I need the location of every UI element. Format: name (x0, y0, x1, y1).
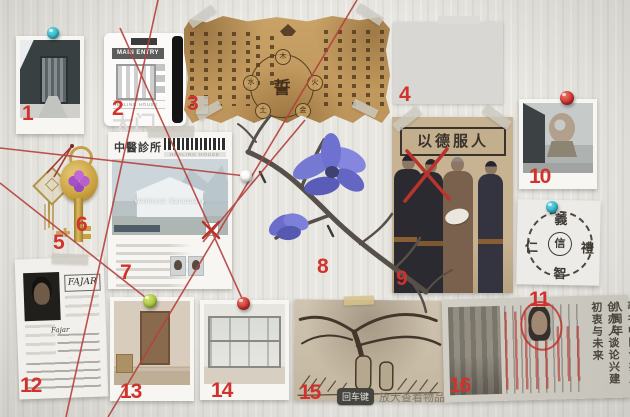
person-belt (478, 239, 503, 244)
hallway-photo-image (114, 301, 190, 385)
label-number-6: 6 (76, 214, 87, 235)
tape-sketch-top (344, 295, 374, 305)
file-portrait (23, 272, 61, 321)
file-header-lines (65, 295, 100, 320)
label-number-16: 16 (449, 375, 470, 396)
evidence-family-poster[interactable]: 以德服人 (392, 117, 513, 293)
sculpture-base (547, 141, 577, 157)
pushpin-white-branch (240, 170, 252, 182)
file-entry-lines (57, 333, 100, 358)
card-top-label (131, 38, 157, 45)
person-head (485, 161, 497, 175)
tape-flyer-top (148, 126, 194, 137)
seal-char-bottom: 智 (553, 263, 566, 282)
seal-char-center: 信 (548, 232, 572, 256)
oath-diagram: 誓 木 水 火 土 金 (250, 54, 314, 118)
label-number-13: 13 (120, 381, 141, 402)
card-side-icons (156, 64, 165, 96)
calligraphy-columns-right (324, 30, 384, 108)
label-number-2: 2 (112, 98, 123, 119)
element-wood: 木 (275, 49, 291, 65)
evidence-seal-paper[interactable]: 義 仁 禮 智 信 (516, 199, 600, 285)
label-number-9: 9 (396, 268, 407, 289)
photo-caption-band (114, 225, 160, 232)
seal-char-top: 義 (554, 209, 567, 228)
label-number-14: 14 (211, 380, 232, 401)
keyboard-hint: 回车键 放大查看物品 (337, 388, 445, 405)
pushpin-cyan-seal (546, 201, 558, 213)
flyer-subtitle: HEALING HOUSE (164, 152, 226, 157)
person-belt (417, 241, 443, 246)
hint-text: 放大查看物品 (379, 389, 445, 405)
label-number-5: 5 (53, 232, 64, 253)
flyer-id-photo-1 (170, 256, 186, 276)
seal-char-right: 禮 (581, 237, 594, 256)
photo-box (116, 354, 133, 373)
flyer-title: 中醫診所 (114, 139, 162, 155)
room-photo-image (204, 304, 285, 384)
label-number-1: 1 (22, 103, 33, 124)
pushpin-red-sculpture (560, 91, 574, 105)
element-fire: 火 (307, 75, 323, 91)
person-head (425, 159, 437, 173)
flyer-id-photo-2 (188, 256, 204, 276)
person-head (402, 155, 415, 170)
label-number-4: 4 (399, 84, 410, 105)
person-head (451, 157, 464, 172)
label-number-10: 10 (529, 166, 550, 187)
label-number-11: 11 (529, 289, 549, 310)
newspaper-headline-2: 创办人谈论兴建初衷与未来 (588, 301, 622, 394)
photo-door (140, 311, 170, 365)
person-body (443, 171, 473, 293)
label-number-12: 12 (20, 375, 41, 396)
file-name-header: FAJAR (64, 274, 101, 292)
person-body (478, 174, 503, 293)
element-water: 水 (243, 75, 259, 91)
pushpin-cyan-entrance (47, 27, 59, 39)
flyer-checkbox (205, 222, 219, 236)
label-number-15: 15 (299, 382, 320, 403)
qr-code (116, 64, 156, 100)
key-flower-inlay (68, 168, 90, 192)
element-earth: 土 (255, 103, 271, 119)
tape-file-top (52, 253, 88, 264)
enter-key-badge: 回车键 (337, 388, 374, 405)
card-title: MAIN ENTRY (112, 48, 164, 59)
pushpin-green-hallway (143, 294, 157, 308)
label-number-8: 8 (317, 256, 328, 277)
sculpture-photo-image (523, 103, 593, 173)
seal-char-left: 仁 (525, 236, 538, 255)
pendant-tassel (48, 202, 50, 228)
photo-glass-partition (208, 316, 281, 368)
ring-sculpture (549, 113, 575, 143)
evidence-board: MAIN ENTRY HEALING HOUSE 大门 誓 木 水 火 土 金 (0, 0, 630, 417)
card-magnetic-stripe (172, 36, 183, 123)
calligraphy-columns-left (190, 32, 250, 106)
oath-center-character: 誓 (274, 74, 291, 99)
flyer-barcode (164, 138, 226, 150)
scroll-seal-mark (280, 24, 296, 36)
seal-emblem: 義 仁 禮 智 信 (526, 210, 593, 277)
label-number-3: 3 (187, 93, 198, 114)
note-fold-tab (438, 16, 480, 24)
label-number-7: 7 (120, 262, 131, 283)
flyer-photo-caption: Wellness Sanctuary (112, 199, 228, 205)
poster-banner: 以德服人 (400, 127, 506, 156)
person-body (417, 172, 443, 293)
pushpin-red-room (237, 297, 250, 310)
